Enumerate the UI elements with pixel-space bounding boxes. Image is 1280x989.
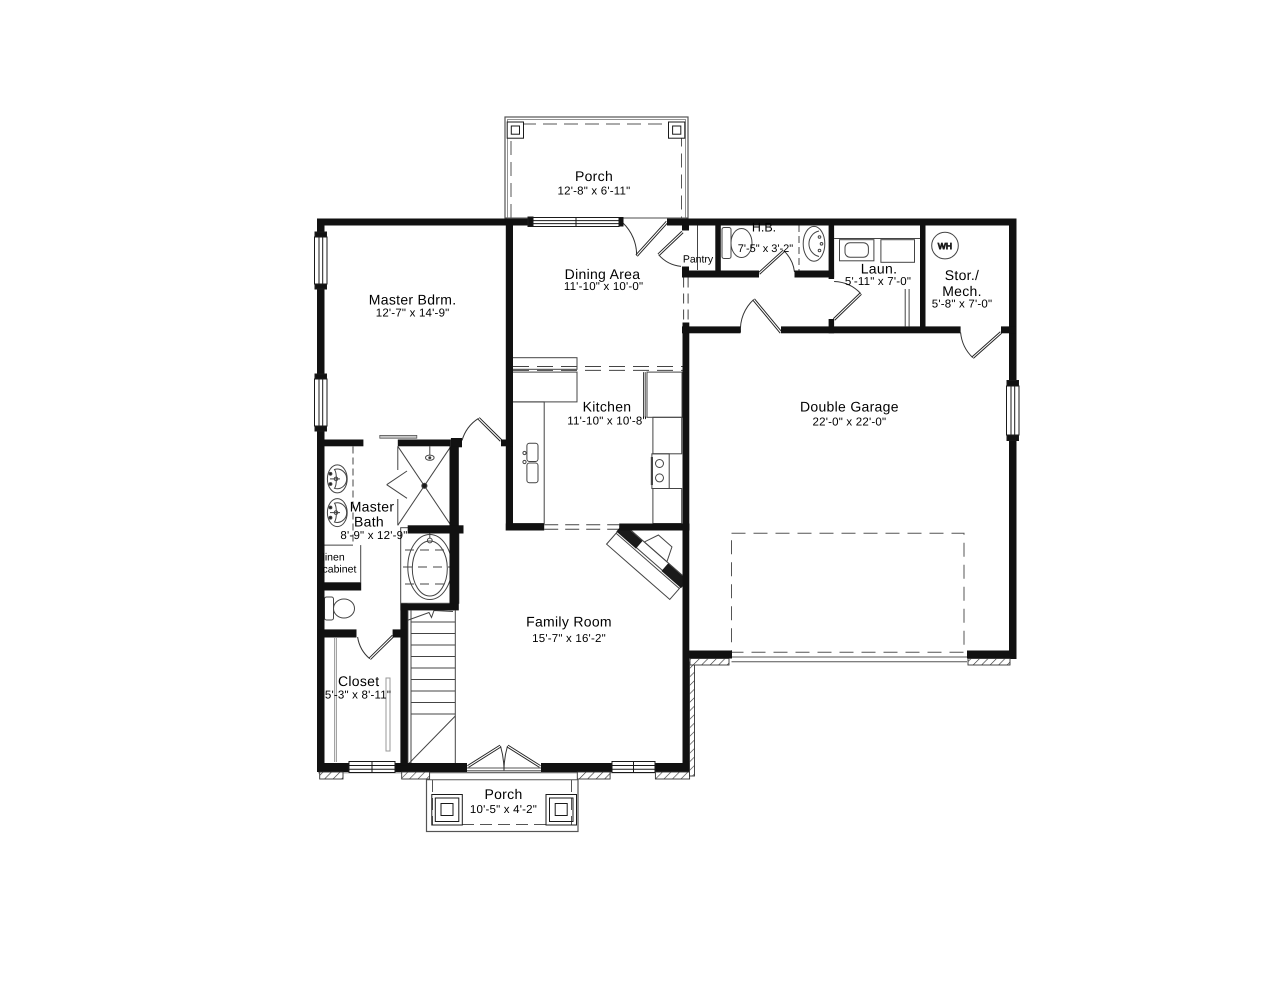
svg-text:Mech.: Mech. bbox=[942, 283, 982, 299]
svg-text:Dining Area: Dining Area bbox=[565, 266, 641, 282]
svg-text:Master: Master bbox=[350, 499, 395, 515]
svg-text:5'-3" x 8'-11": 5'-3" x 8'-11" bbox=[325, 690, 391, 702]
svg-text:Family Room: Family Room bbox=[526, 614, 612, 630]
svg-text:12'-8" x 6'-11": 12'-8" x 6'-11" bbox=[558, 186, 631, 198]
svg-text:11'-10" x 10'-8": 11'-10" x 10'-8" bbox=[567, 416, 646, 428]
svg-text:Pantry: Pantry bbox=[683, 254, 714, 266]
svg-text:Porch: Porch bbox=[484, 786, 522, 802]
svg-text:Porch: Porch bbox=[575, 168, 613, 184]
svg-text:8'-9" x 12'-9": 8'-9" x 12'-9" bbox=[340, 530, 407, 542]
svg-text:7'-5" x 3'-2": 7'-5" x 3'-2" bbox=[738, 243, 794, 255]
svg-text:H.B.: H.B. bbox=[752, 221, 776, 235]
svg-text:cabinet: cabinet bbox=[323, 564, 357, 576]
svg-text:5'-8" x 7'-0": 5'-8" x 7'-0" bbox=[932, 299, 993, 311]
svg-text:10'-5" x 4'-2": 10'-5" x 4'-2" bbox=[470, 804, 537, 816]
svg-text:15'-7" x 16'-2": 15'-7" x 16'-2" bbox=[532, 633, 606, 645]
svg-text:Bath: Bath bbox=[354, 514, 384, 530]
svg-text:Master Bdrm.: Master Bdrm. bbox=[369, 292, 457, 308]
svg-text:5'-11" x 7'-0": 5'-11" x 7'-0" bbox=[845, 276, 911, 288]
svg-text:22'-0" x 22'-0": 22'-0" x 22'-0" bbox=[813, 417, 887, 429]
svg-text:Stor./: Stor./ bbox=[945, 267, 979, 283]
svg-text:Closet: Closet bbox=[338, 673, 379, 689]
svg-text:Double Garage: Double Garage bbox=[800, 399, 899, 415]
svg-text:Kitchen: Kitchen bbox=[583, 399, 632, 415]
svg-text:12'-7" x 14'-9": 12'-7" x 14'-9" bbox=[376, 308, 450, 320]
svg-text:Laun.: Laun. bbox=[861, 261, 898, 277]
svg-text:WH: WH bbox=[938, 241, 952, 251]
svg-text:11'-10" x 10'-0": 11'-10" x 10'-0" bbox=[564, 281, 643, 293]
svg-text:linen: linen bbox=[323, 552, 345, 564]
